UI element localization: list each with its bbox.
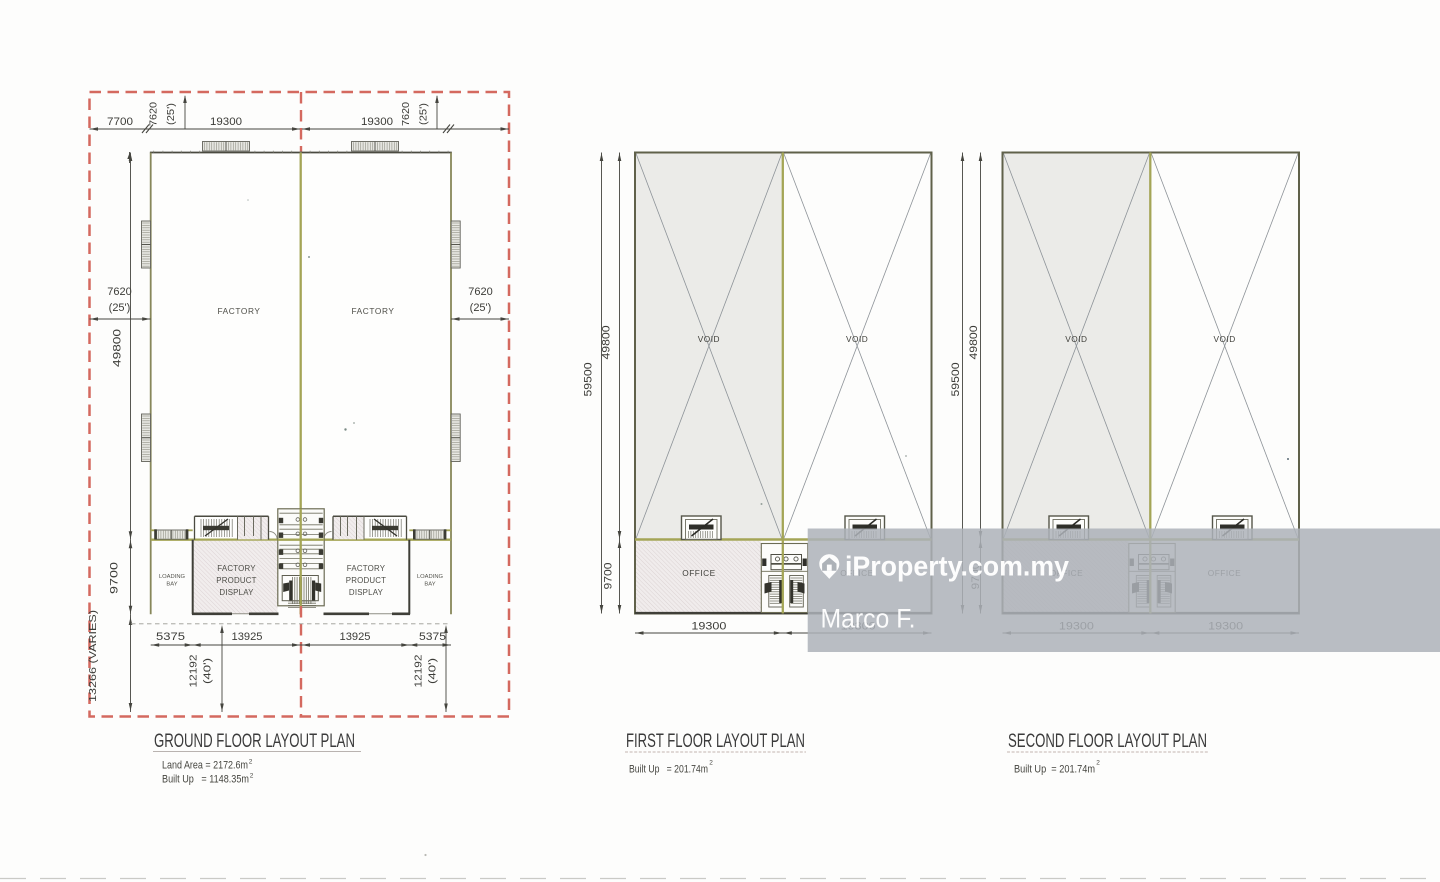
svg-text:49800: 49800 <box>112 329 124 367</box>
svg-text:OFFICE: OFFICE <box>682 568 715 578</box>
svg-text:(40'): (40') <box>202 658 214 684</box>
svg-text:VOID: VOID <box>698 334 720 344</box>
svg-text:GROUND FLOOR LAYOUT PLAN: GROUND FLOOR LAYOUT PLAN <box>154 730 355 752</box>
svg-text:VOID: VOID <box>1214 334 1236 344</box>
svg-text:LOADING: LOADING <box>417 574 444 580</box>
svg-text:7620: 7620 <box>400 102 412 126</box>
svg-text:12192: 12192 <box>188 654 200 687</box>
svg-text:(25'): (25') <box>165 103 177 125</box>
svg-text:(25'): (25') <box>470 302 492 314</box>
svg-text:PRODUCT: PRODUCT <box>346 576 386 585</box>
svg-text:9700: 9700 <box>603 563 615 590</box>
svg-text:7620: 7620 <box>148 102 160 126</box>
svg-text:13266 (VARIES): 13266 (VARIES) <box>87 610 99 702</box>
svg-text:59500: 59500 <box>583 363 595 397</box>
svg-text:FACTORY: FACTORY <box>217 564 256 573</box>
svg-text:FACTORY: FACTORY <box>217 306 260 316</box>
svg-text:BAY: BAY <box>166 582 177 588</box>
svg-text:7700: 7700 <box>107 116 133 128</box>
svg-text:DISPLAY: DISPLAY <box>219 588 254 597</box>
svg-text:2: 2 <box>249 759 253 766</box>
svg-text:19300: 19300 <box>361 116 393 128</box>
svg-text:PRODUCT: PRODUCT <box>216 576 256 585</box>
svg-text:19300: 19300 <box>210 116 242 128</box>
svg-text:BAY: BAY <box>424 582 435 588</box>
svg-text:5375: 5375 <box>419 631 446 643</box>
svg-text:49800: 49800 <box>601 326 613 360</box>
svg-text:12192: 12192 <box>413 654 425 687</box>
svg-text:7620: 7620 <box>468 286 492 298</box>
svg-text:Built Up = 201.74m: Built Up = 201.74m <box>629 764 708 776</box>
svg-text:13925: 13925 <box>232 631 263 643</box>
svg-text:7620: 7620 <box>107 286 131 298</box>
svg-text:2: 2 <box>250 773 254 780</box>
svg-text:2: 2 <box>1096 760 1100 767</box>
svg-text:19300: 19300 <box>691 621 726 633</box>
svg-text:(25'): (25') <box>418 103 430 125</box>
svg-text:49800: 49800 <box>968 326 980 360</box>
svg-text:59500: 59500 <box>950 363 962 397</box>
svg-text:5375: 5375 <box>156 631 185 643</box>
svg-text:(40'): (40') <box>427 658 439 684</box>
svg-text:Built Up = 1148.35m: Built Up = 1148.35m <box>162 774 249 786</box>
svg-text:9700: 9700 <box>109 562 121 594</box>
svg-text:SECOND FLOOR LAYOUT PLAN: SECOND FLOOR LAYOUT PLAN <box>1008 730 1207 752</box>
svg-text:LOADING: LOADING <box>159 574 186 580</box>
svg-text:DISPLAY: DISPLAY <box>349 588 384 597</box>
svg-text:FACTORY: FACTORY <box>351 306 394 316</box>
svg-text:2: 2 <box>709 760 713 767</box>
svg-text:VOID: VOID <box>1065 334 1087 344</box>
svg-text:VOID: VOID <box>846 334 868 344</box>
svg-text:iProperty.com.my: iProperty.com.my <box>845 551 1070 582</box>
svg-text:13925: 13925 <box>340 631 371 643</box>
svg-text:FIRST FLOOR LAYOUT PLAN: FIRST FLOOR LAYOUT PLAN <box>626 730 805 752</box>
svg-text:FACTORY: FACTORY <box>347 564 386 573</box>
svg-text:Marco F.: Marco F. <box>821 604 916 634</box>
svg-text:Land Area = 2172.6m: Land Area = 2172.6m <box>162 760 248 772</box>
svg-text:(25'): (25') <box>109 302 131 314</box>
svg-text:Built Up = 201.74m: Built Up = 201.74m <box>1014 764 1095 776</box>
